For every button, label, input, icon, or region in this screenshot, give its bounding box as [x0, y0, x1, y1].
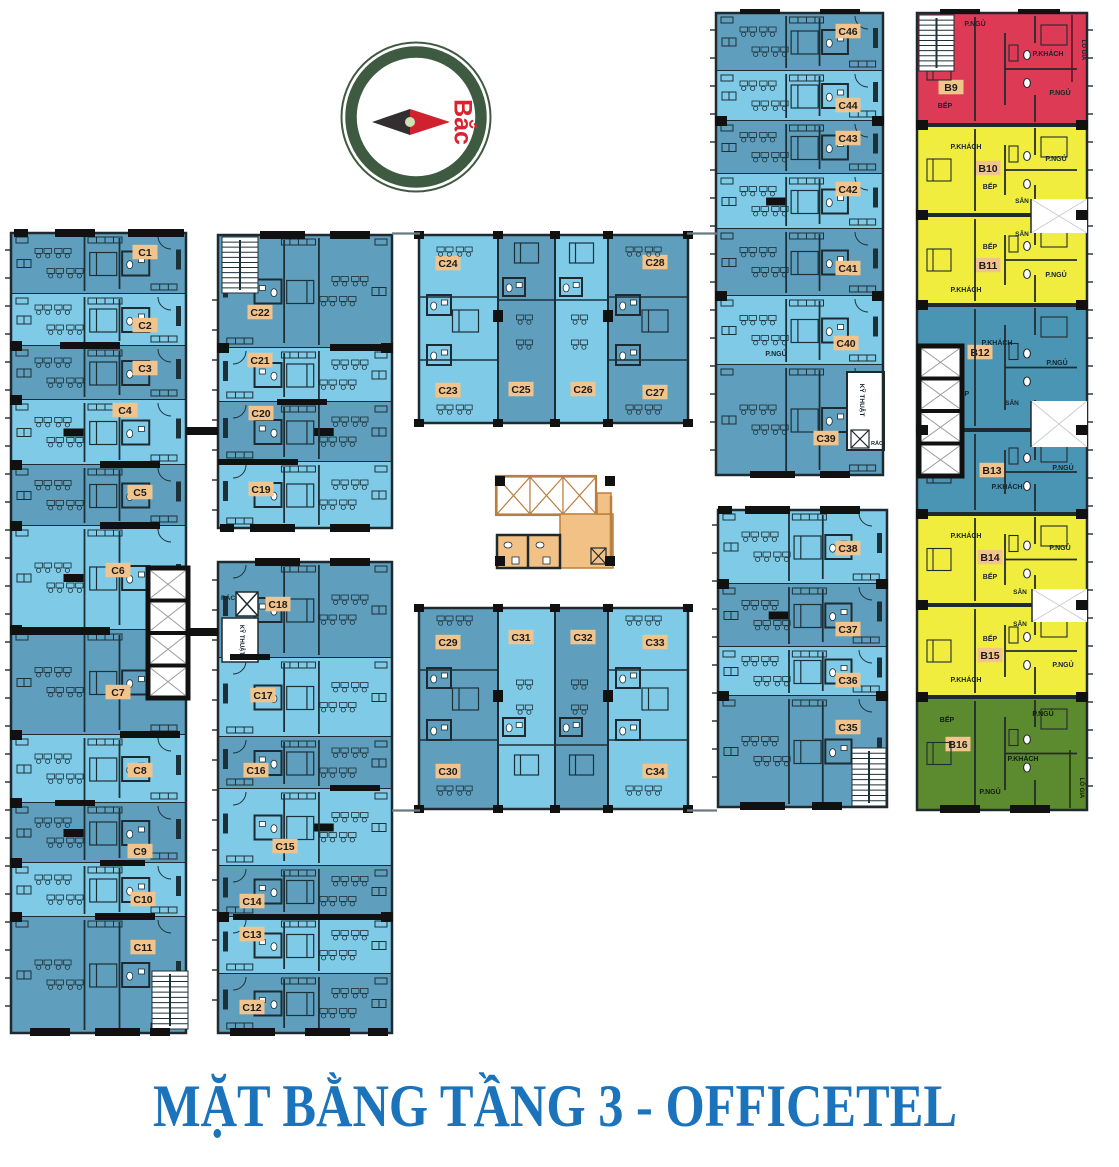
svg-text:C20: C20 — [251, 408, 270, 420]
svg-text:P.NGỦ: P.NGỦ — [1032, 709, 1053, 718]
svg-text:MẶT BẰNG TẦNG 3 - OFFICETEL: MẶT BẰNG TẦNG 3 - OFFICETEL — [153, 1073, 957, 1139]
svg-text:C38: C38 — [838, 543, 857, 555]
svg-text:C18: C18 — [268, 599, 287, 611]
svg-text:C17: C17 — [253, 690, 272, 702]
svg-text:C4: C4 — [118, 405, 132, 417]
svg-text:C13: C13 — [242, 929, 261, 941]
svg-text:SÂN: SÂN — [1005, 398, 1019, 407]
svg-text:P.NGỦ: P.NGỦ — [765, 349, 786, 358]
svg-text:B10: B10 — [978, 163, 997, 175]
svg-text:P.NGỦ: P.NGỦ — [1049, 543, 1070, 552]
svg-text:C7: C7 — [111, 687, 125, 699]
svg-text:C10: C10 — [133, 894, 152, 906]
svg-text:SÂN: SÂN — [1015, 229, 1029, 238]
svg-text:C35: C35 — [838, 722, 857, 734]
svg-text:B12: B12 — [970, 347, 989, 359]
svg-text:C19: C19 — [251, 484, 270, 496]
svg-text:P.KHÁCH: P.KHÁCH — [992, 482, 1023, 491]
svg-text:C30: C30 — [438, 766, 457, 778]
svg-text:P.KHÁCH: P.KHÁCH — [1008, 754, 1039, 763]
svg-text:P.NGỦ: P.NGỦ — [1046, 358, 1067, 367]
svg-text:SÂN: SÂN — [1015, 196, 1029, 205]
svg-text:P.KHÁCH: P.KHÁCH — [951, 675, 982, 684]
svg-text:C42: C42 — [838, 184, 857, 196]
svg-text:P.KHÁCH: P.KHÁCH — [951, 285, 982, 294]
svg-text:C26: C26 — [573, 384, 592, 396]
svg-text:C2: C2 — [138, 320, 152, 332]
svg-text:P.NGỦ: P.NGỦ — [964, 19, 985, 28]
svg-text:C37: C37 — [838, 624, 857, 636]
svg-text:C23: C23 — [438, 385, 457, 397]
svg-text:SÂN: SÂN — [1013, 587, 1027, 596]
svg-text:P.KHÁCH: P.KHÁCH — [982, 338, 1013, 347]
svg-text:C46: C46 — [838, 26, 857, 38]
svg-text:Bắc: Bắc — [448, 99, 478, 145]
svg-text:P.NGỦ: P.NGỦ — [1052, 463, 1073, 472]
svg-text:B9: B9 — [944, 82, 958, 94]
svg-text:C1: C1 — [138, 247, 152, 259]
svg-text:C22: C22 — [250, 307, 269, 319]
svg-text:C31: C31 — [511, 632, 530, 644]
svg-text:C12: C12 — [242, 1002, 261, 1014]
svg-text:C11: C11 — [134, 942, 153, 954]
svg-text:C43: C43 — [838, 133, 857, 145]
svg-text:C41: C41 — [838, 263, 857, 275]
svg-text:P.NGỦ: P.NGỦ — [1052, 660, 1073, 669]
svg-text:KỸ THUẬT: KỸ THUẬT — [238, 625, 245, 656]
svg-text:RÁC: RÁC — [221, 593, 235, 602]
svg-text:C24: C24 — [438, 258, 457, 270]
svg-text:C14: C14 — [242, 896, 261, 908]
svg-text:C32: C32 — [573, 632, 592, 644]
svg-text:C9: C9 — [133, 846, 147, 858]
svg-text:C8: C8 — [133, 765, 147, 777]
svg-text:C6: C6 — [111, 565, 125, 577]
svg-text:RÁC: RÁC — [871, 440, 883, 447]
svg-text:C28: C28 — [645, 257, 664, 269]
svg-text:P.KHÁCH: P.KHÁCH — [951, 531, 982, 540]
svg-text:P.NGỦ: P.NGỦ — [979, 787, 1000, 796]
svg-text:LÔ GIA: LÔ GIA — [1078, 778, 1086, 799]
svg-text:B15: B15 — [980, 650, 999, 662]
svg-text:C40: C40 — [836, 338, 855, 350]
svg-text:B13: B13 — [982, 465, 1001, 477]
svg-text:C34: C34 — [645, 766, 664, 778]
svg-text:B11: B11 — [979, 260, 998, 272]
svg-text:C33: C33 — [645, 637, 664, 649]
svg-text:C29: C29 — [438, 637, 457, 649]
svg-text:C27: C27 — [645, 387, 664, 399]
svg-text:P.NGỦ: P.NGỦ — [1049, 88, 1070, 97]
svg-text:C3: C3 — [138, 363, 152, 375]
svg-text:C21: C21 — [250, 355, 269, 367]
svg-text:P.NGỦ: P.NGỦ — [1045, 154, 1066, 163]
svg-text:C5: C5 — [133, 487, 147, 499]
svg-text:P.KHÁCH: P.KHÁCH — [951, 142, 982, 151]
svg-text:C44: C44 — [838, 100, 857, 112]
svg-text:P.KHÁCH: P.KHÁCH — [1033, 49, 1064, 58]
svg-text:C39: C39 — [816, 433, 835, 445]
svg-text:C25: C25 — [511, 384, 530, 396]
svg-text:B14: B14 — [980, 552, 999, 564]
svg-text:SÂN: SÂN — [1013, 619, 1027, 628]
svg-text:C15: C15 — [275, 841, 294, 853]
svg-text:KỸ THUẬT: KỸ THUẬT — [858, 384, 867, 417]
svg-text:C16: C16 — [246, 765, 265, 777]
svg-text:C36: C36 — [838, 675, 857, 687]
svg-text:P.NGỦ: P.NGỦ — [1045, 270, 1066, 279]
